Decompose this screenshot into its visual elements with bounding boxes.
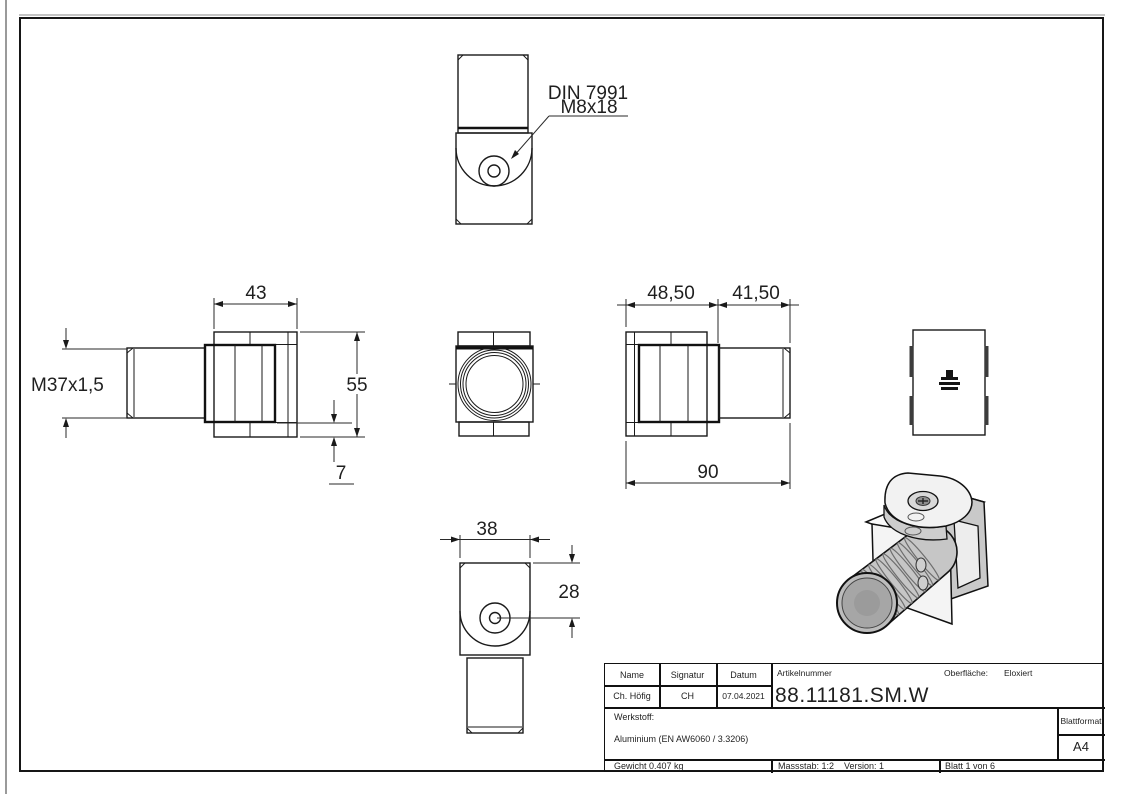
- name-header: Name: [605, 664, 659, 685]
- drawing-sheet: DIN 7991 M8x18 43: [0, 0, 1123, 794]
- signature-value: CH: [659, 685, 716, 707]
- iso-countersunk-screw: [908, 492, 938, 511]
- dim-7-text: 7: [336, 463, 347, 484]
- view-side-right: 48,50 41,50 90: [617, 283, 799, 489]
- dim-38-text: 38: [476, 519, 497, 540]
- article-number: 88.11181.SM.W: [775, 683, 1035, 708]
- scale-value: Massstab: 1:2: [778, 760, 842, 772]
- dim-4150-text: 41,50: [732, 283, 780, 304]
- dim-90-text: 90: [697, 462, 718, 483]
- material-label: Werkstoff:: [614, 710, 814, 724]
- dimension-90: 90: [626, 423, 790, 489]
- view-isometric: [837, 473, 988, 633]
- brand-engraving-mark: [939, 370, 960, 390]
- dimension-7: 7: [277, 400, 354, 484]
- sheet-format-value: A4: [1057, 734, 1105, 759]
- version-value: Version: 1: [844, 760, 904, 772]
- date-header: Datum: [716, 664, 771, 685]
- dimension-38: 38: [440, 519, 550, 558]
- date-value: 07.04.2021: [716, 685, 771, 707]
- article-number-header: Artikelnummer: [777, 666, 897, 680]
- view-side-left: 43 55 M37x1,5: [31, 283, 370, 484]
- sheet-format-label: Blattformat: [1057, 707, 1105, 734]
- dim-28-text: 28: [558, 582, 579, 603]
- weight-value: Gewicht 0.407 kg: [614, 760, 764, 772]
- dimension-43: 43: [214, 283, 297, 329]
- dimension-55: 55: [300, 332, 370, 437]
- dim-43-text: 43: [245, 283, 266, 304]
- screw-note-line2: M8x18: [560, 97, 617, 118]
- dim-55-text: 55: [346, 375, 367, 396]
- surface-label: Oberfläche:: [944, 666, 1004, 680]
- dimension-thread: M37x1,5: [31, 328, 127, 438]
- surface-value: Eloxiert: [1004, 666, 1064, 680]
- dim-4850-text: 48,50: [647, 283, 695, 304]
- view-bottom: 38 28: [440, 519, 580, 733]
- thread-label-text: M37x1,5: [31, 375, 104, 396]
- view-top: DIN 7991 M8x18: [456, 55, 628, 224]
- dimension-4850-4150: 48,50 41,50: [617, 283, 799, 343]
- sheet-number: Blatt 1 von 6: [945, 760, 1045, 772]
- name-value: Ch. Höfig: [605, 685, 659, 707]
- material-value: Aluminium (EN AW6060 / 3.3206): [614, 732, 874, 746]
- view-front: [449, 332, 540, 436]
- title-block: Name Signatur Datum Artikelnummer Oberfl…: [604, 663, 1104, 772]
- view-back: [912, 330, 987, 435]
- signature-header: Signatur: [659, 664, 716, 685]
